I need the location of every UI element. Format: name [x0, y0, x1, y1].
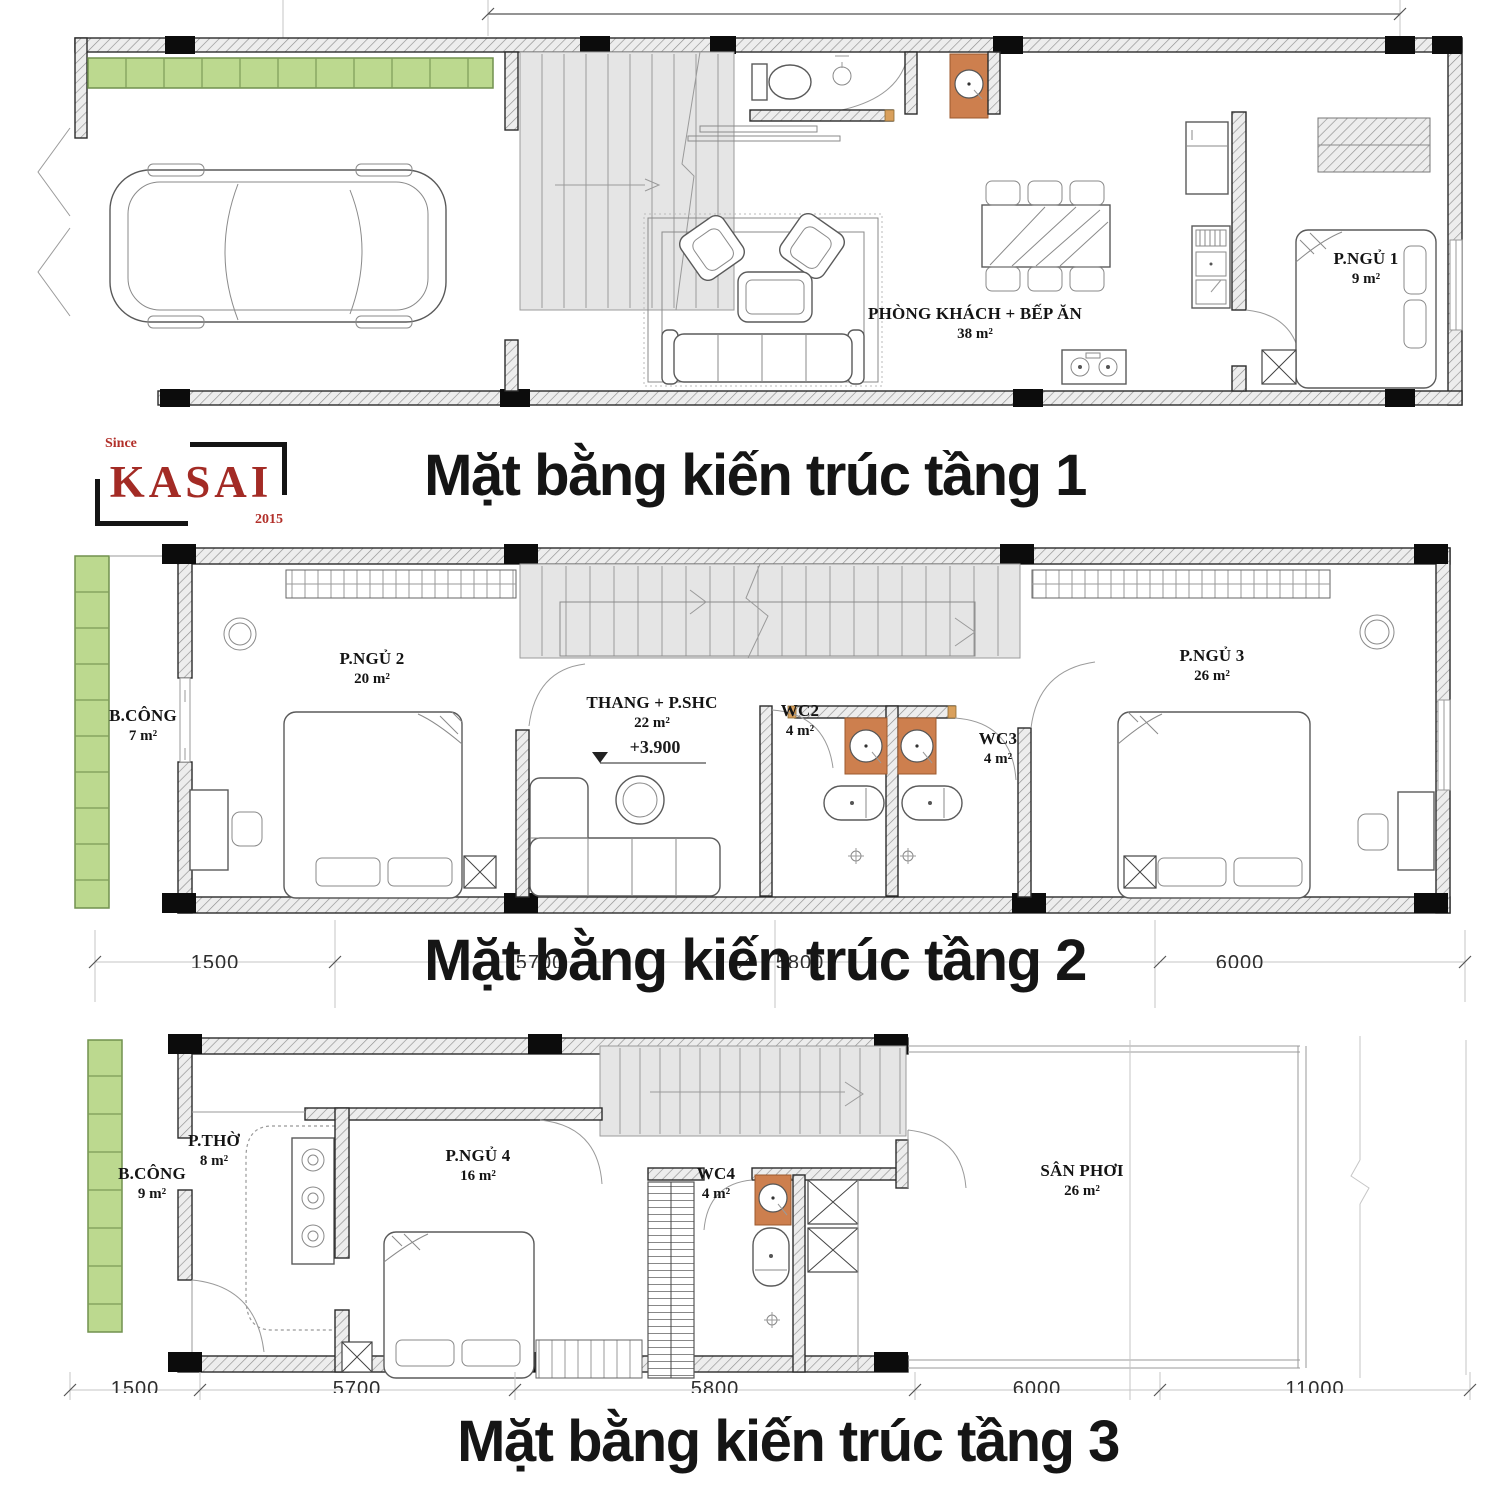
- architectural-drawing: .wall{fill:url(#hatch);stroke:#2b2b2b;st…: [0, 0, 1500, 1500]
- planter-strip: [75, 556, 109, 908]
- room-label-bedroom2: P.NGỦ 2 20 m²: [339, 648, 404, 690]
- wardrobe-icon: [536, 1340, 642, 1378]
- bedroom4: [342, 1232, 642, 1378]
- bed-icon: [384, 1232, 534, 1378]
- logo-year: 2015: [255, 512, 283, 528]
- room-label-balcony3: B.CÔNG 9 m²: [118, 1163, 186, 1205]
- room-label-wc3: WC3 4 m²: [979, 728, 1017, 770]
- ac-unit-icon: [1262, 350, 1296, 384]
- dimension-value: 11000: [1285, 1378, 1344, 1393]
- level-label: +3.900: [630, 737, 681, 758]
- shaft-icon: [808, 1180, 858, 1224]
- vanity-sink-icon: [755, 1175, 791, 1225]
- room-label-stair-hall: THANG + P.SHC 22 m²: [586, 692, 717, 734]
- bedroom3: [1032, 570, 1434, 898]
- kitchen-sink-icon: [1192, 226, 1230, 308]
- wc1-zone: [688, 52, 1000, 141]
- shaft-icon: [808, 1228, 858, 1272]
- floor1-plan: [38, 0, 1462, 407]
- sofa-icon: [662, 330, 864, 384]
- floor3-plan: [64, 1034, 1476, 1400]
- nightstand-icon: [342, 1342, 372, 1372]
- dining-table: [982, 181, 1110, 291]
- toilet-icon: [902, 786, 962, 820]
- room-label-terrace: SÂN PHƠI 26 m²: [1040, 1160, 1123, 1202]
- nightstand-icon: [464, 856, 496, 888]
- floor3-title: Mặt bằng kiến trúc tầng 3: [457, 1408, 1119, 1475]
- vanity-sink-icon: [898, 718, 936, 774]
- dimension-row-floor3: 1500 5700 5800 6000 11000: [0, 1378, 1500, 1393]
- wc2-wc3: [760, 662, 1095, 897]
- coffee-table-icon: [738, 272, 812, 322]
- room-label-wc4: WC4 4 m²: [697, 1163, 735, 1205]
- altar-icon: [246, 1126, 335, 1330]
- logo-since: Since: [105, 436, 137, 452]
- level-marker-icon: [592, 752, 608, 763]
- gate-icon: [38, 128, 70, 316]
- dimension-value: 5800: [691, 1378, 740, 1393]
- dimension-value: 1500: [111, 1378, 160, 1393]
- logo-name: KASAI: [110, 456, 273, 508]
- chair-icon: [232, 812, 262, 846]
- room-label-living-kitchen: PHÒNG KHÁCH + BẾP ĂN 38 m²: [868, 303, 1082, 345]
- planter-strip: [88, 1040, 122, 1332]
- room-label-worship: P.THỜ 8 m²: [188, 1130, 240, 1172]
- stove-icon: [1062, 350, 1126, 384]
- planter-strip: [88, 58, 493, 88]
- kasai-logo: Since KASAI 2015: [95, 430, 287, 536]
- dimension-value: 1500: [191, 952, 240, 968]
- floor1-title: Mặt bằng kiến trúc tầng 1: [424, 442, 1086, 509]
- chair-icon: [1358, 814, 1388, 850]
- room-label-bedroom3: P.NGỦ 3 26 m²: [1179, 645, 1244, 687]
- toilet-icon: [753, 1228, 789, 1286]
- vanity-sink-icon: [845, 718, 887, 774]
- room-label-wc2: WC2 4 m²: [781, 700, 819, 742]
- toilet-icon: [752, 64, 811, 100]
- refrigerator-icon: [1186, 122, 1228, 194]
- floor2-title: Mặt bằng kiến trúc tầng 2: [424, 927, 1086, 994]
- toilet-icon: [824, 786, 884, 820]
- vanity-sink-icon: [950, 54, 988, 118]
- dimension-value: 6000: [1013, 1378, 1062, 1393]
- sprayer-icon: [764, 1312, 780, 1328]
- nightstand-icon: [1124, 856, 1156, 888]
- staircase-3: [600, 1046, 906, 1136]
- shower-icon: [833, 56, 851, 85]
- room-label-bedroom4: P.NGỦ 4 16 m²: [445, 1145, 510, 1187]
- room-label-balcony2: B.CÔNG 7 m²: [109, 705, 177, 747]
- desk-icon: [1398, 792, 1434, 870]
- sprayer-icon: [900, 848, 916, 864]
- room-label-bedroom1: P.NGỦ 1 9 m²: [1333, 248, 1398, 290]
- car-icon: [110, 164, 446, 328]
- bed-icon: [284, 712, 462, 898]
- dimension-value: 6000: [1216, 952, 1265, 968]
- desk-icon: [190, 790, 228, 870]
- floor-plan-sheet: .wall{fill:url(#hatch);stroke:#2b2b2b;st…: [0, 0, 1500, 1500]
- staircase-2: [520, 564, 1020, 658]
- family-room: [530, 752, 720, 896]
- dimension-value: 5700: [333, 1378, 382, 1393]
- sprayer-icon: [848, 848, 864, 864]
